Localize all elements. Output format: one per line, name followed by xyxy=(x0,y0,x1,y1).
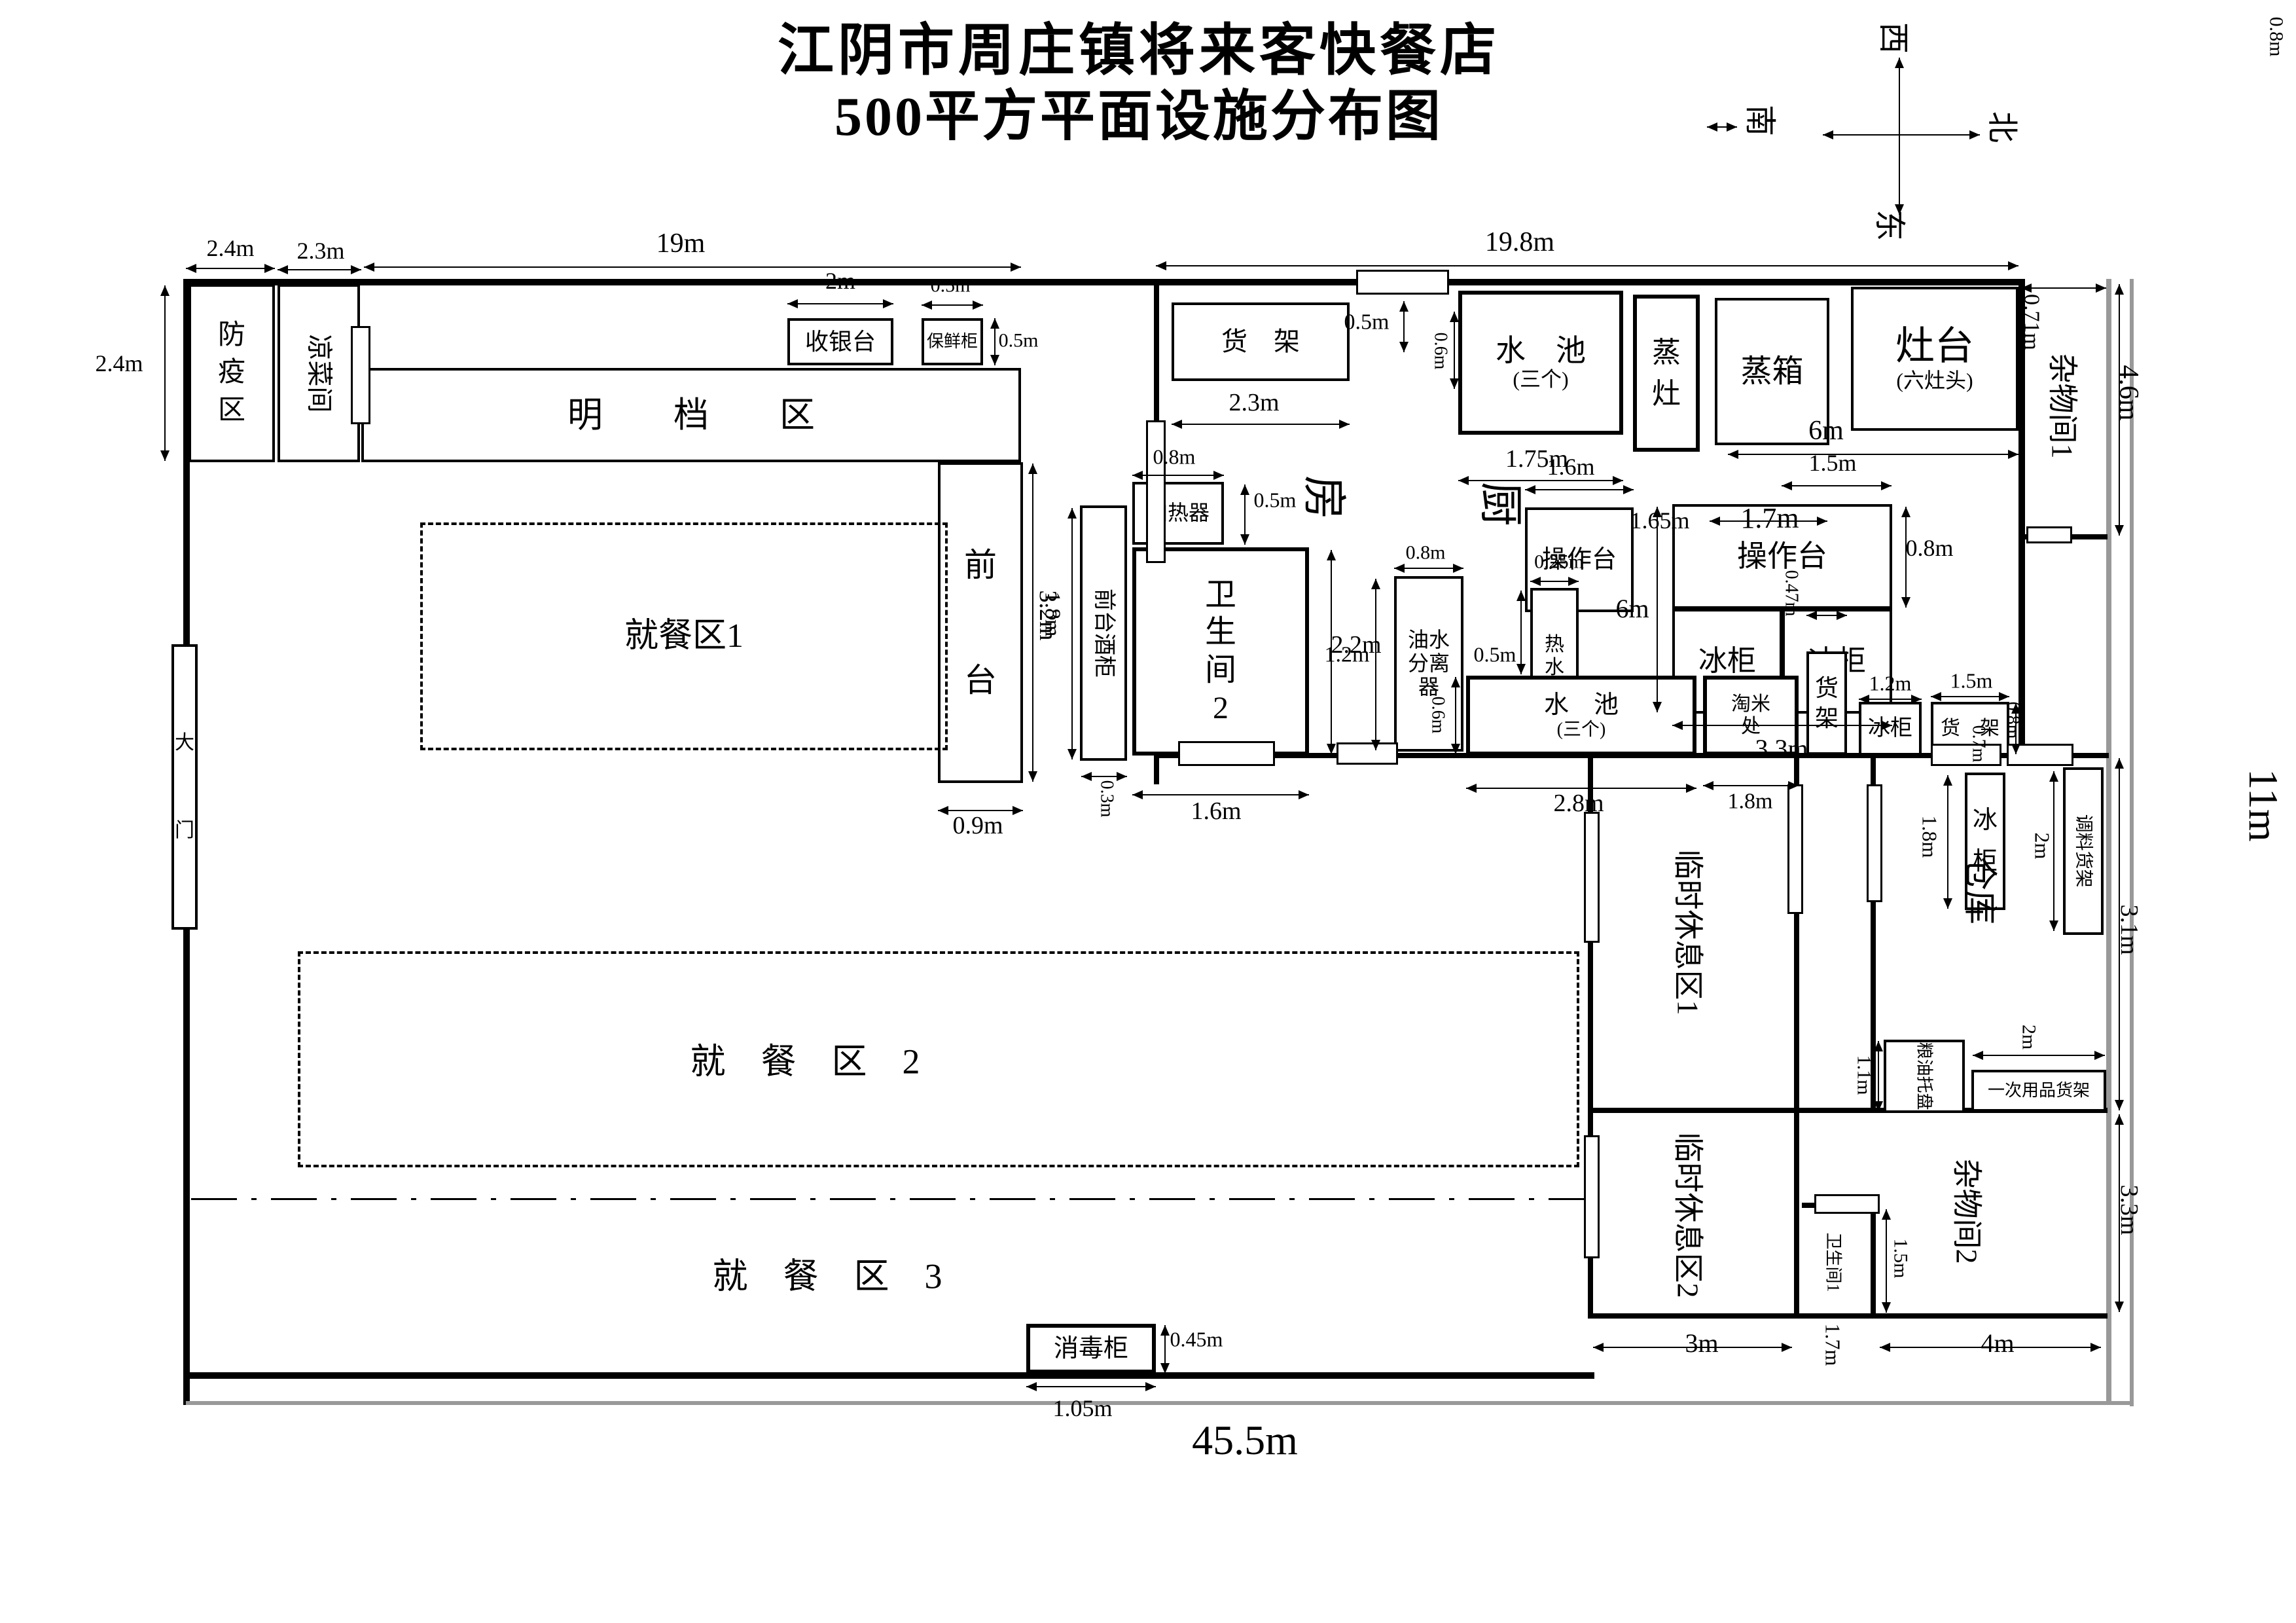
dim-arrow-line xyxy=(1458,480,1623,481)
floor-plan-canvas: 江阴市周庄镇将来客快餐店 500平方平面设施分布图 西 北 东 南 防疫区凉菜间… xyxy=(0,0,2296,1623)
dim-arrow-line xyxy=(1071,508,1073,759)
arrowhead-up xyxy=(2011,703,2020,714)
arrowhead-left xyxy=(1710,517,1720,526)
dim-label: 1.8m xyxy=(1918,816,1941,858)
dim-label: 1.7m xyxy=(1740,503,1799,534)
dim-label: 0.9m xyxy=(952,812,1003,840)
door-opening xyxy=(1867,784,1882,902)
arrowhead-down xyxy=(1028,771,1037,782)
arrowhead-right xyxy=(351,265,361,274)
dim-arrow-line xyxy=(1823,134,1980,136)
room-epidemic-prevention: 防疫区 xyxy=(188,284,275,462)
arrowhead-right xyxy=(1788,781,1799,790)
arrowhead-up xyxy=(1028,464,1037,474)
dim-arrow-line xyxy=(1905,507,1907,608)
dim-arrow-line xyxy=(1973,1055,2105,1056)
dim-arrow-line xyxy=(1156,265,2018,266)
arrowhead-left xyxy=(1823,130,1833,139)
arrowhead-left xyxy=(278,265,288,274)
arrowhead-down xyxy=(2115,1302,2124,1312)
dim-arrow-line xyxy=(1172,424,1350,425)
arrowhead-left xyxy=(1081,772,1092,781)
arrowhead-right xyxy=(1817,517,1827,526)
arrowhead-down xyxy=(2049,921,2058,931)
door-opening xyxy=(1146,420,1166,563)
dim-arrow-line xyxy=(1525,489,1634,490)
dim-label: 19m xyxy=(656,228,706,259)
arrowhead-down xyxy=(2115,525,2124,536)
arrowhead-left xyxy=(1672,721,1683,730)
dim-label: 6m xyxy=(1808,416,1844,446)
arrowhead-up xyxy=(1067,508,1077,519)
arrowhead-right xyxy=(1213,471,1224,480)
arrowhead-up xyxy=(1874,1041,1883,1051)
arrowhead-left xyxy=(1172,420,1182,429)
dim-arrow-line xyxy=(1931,696,2009,697)
arrowhead-right xyxy=(1686,784,1696,793)
dim-arrow-line xyxy=(1520,591,1522,674)
arrowhead-right xyxy=(1339,420,1350,429)
door-opening xyxy=(1814,1194,1880,1214)
arrowhead-right xyxy=(1969,130,1980,139)
front-desk: 前台 xyxy=(938,462,1023,783)
door-opening xyxy=(2026,526,2072,543)
dim-label: 1.5m xyxy=(1890,1239,1912,1279)
dim-label: 11m xyxy=(2240,769,2286,841)
dim-label: 0.45m xyxy=(1170,1328,1223,1351)
dim-label: 4.6m xyxy=(2113,365,2144,420)
dim-label: 0.25m xyxy=(1534,551,1584,573)
disinfection-cabinet: 消毒柜 xyxy=(1026,1324,1156,1374)
arrowhead-left xyxy=(787,299,798,308)
arrowhead-up xyxy=(1901,507,1910,517)
dim-label: 0.5m xyxy=(1254,488,1297,511)
door-opening xyxy=(1584,1135,1600,1258)
dim-label: 0.5m xyxy=(999,330,1039,352)
arrowhead-down xyxy=(1450,378,1459,389)
arrowhead-left xyxy=(1931,692,1941,701)
arrowhead-left xyxy=(186,264,196,273)
arrowhead-right xyxy=(1011,263,1021,272)
arrowhead-right xyxy=(1999,692,2009,701)
arrowhead-right xyxy=(264,264,275,273)
restroom-1-label: 卫生间1 xyxy=(1823,1232,1842,1292)
dim-arrow-line xyxy=(164,285,166,461)
dim-arrow-line xyxy=(2021,287,2106,289)
compass-east-label: 东 xyxy=(1870,210,1916,241)
arrowhead-up xyxy=(990,318,999,329)
arrowhead-down xyxy=(1160,1363,1170,1374)
dim-label: 0.8m xyxy=(2266,17,2287,57)
door-opening xyxy=(1787,784,1803,914)
dim-arrow-line xyxy=(1455,677,1456,754)
dim-label: 45.5m xyxy=(1192,1417,1298,1463)
wall xyxy=(1871,1203,1876,1319)
arrowhead-up xyxy=(1943,775,1952,786)
arrowhead-up xyxy=(2049,771,2058,782)
arrowhead-right xyxy=(973,301,983,310)
shelf-top: 货 架 xyxy=(1172,302,1350,381)
arrowhead-left xyxy=(1782,481,1792,490)
cooking-range: 灶台(六灶头) xyxy=(1851,287,2018,431)
dim-label: 3.3m xyxy=(1755,735,1808,763)
arrowhead-right xyxy=(1299,790,1309,799)
drawing-title: 江阴市周庄镇将来客快餐店 500平方平面设施分布图 xyxy=(484,17,1793,151)
dim-arrow-line xyxy=(1710,520,1827,522)
arrowhead-down xyxy=(2115,1100,2124,1110)
dim-arrow-line xyxy=(1331,550,1332,754)
dim-label: 0.6m xyxy=(1430,333,1450,370)
arrowhead-down xyxy=(1943,898,1952,909)
wall xyxy=(186,1401,2134,1405)
dim-arrow-line xyxy=(1703,785,1799,786)
arrowhead-left xyxy=(1530,577,1541,586)
dim-label: 1.6m xyxy=(1191,798,1241,826)
dim-label: 3m xyxy=(1685,1329,1718,1358)
arrowhead-down xyxy=(160,450,170,461)
door-opening xyxy=(1931,744,2001,766)
arrowhead-up xyxy=(1895,58,1904,68)
dim-label: 1.8m xyxy=(1728,789,1773,813)
arrowhead-down xyxy=(1874,1101,1883,1112)
dim-arrow-line xyxy=(1132,475,1224,476)
arrowhead-right xyxy=(1117,772,1127,781)
dim-arrow-line xyxy=(364,266,1021,268)
arrowhead-right xyxy=(1568,577,1579,586)
arrowhead-right xyxy=(1881,481,1892,490)
dim-arrow-line xyxy=(1899,58,1900,215)
room-open-counter: 明 档 区 xyxy=(361,368,1021,462)
dim-arrow-line xyxy=(1375,579,1376,750)
dim-label: 1.2m xyxy=(1869,672,1912,695)
wall xyxy=(2130,279,2134,1406)
arrowhead-up xyxy=(1399,301,1408,312)
dim-arrow-line xyxy=(1672,725,1892,726)
arrowhead-down xyxy=(1653,702,1662,712)
arrowhead-down xyxy=(1327,744,1336,754)
dim-arrow-line xyxy=(1593,1347,1792,1348)
arrowhead-left xyxy=(922,301,932,310)
sink-three-top: 水 池(三个) xyxy=(1458,291,1623,435)
arrowhead-left xyxy=(1132,790,1143,799)
arrowhead-up xyxy=(1160,1325,1170,1336)
dim-label: 0.5m xyxy=(1474,643,1516,666)
dim-label: 0.6m xyxy=(1427,697,1448,734)
dim-label: 1.05m xyxy=(1052,1396,1112,1422)
dim-label: 2m xyxy=(2030,833,2053,860)
storage-room-2-label: 杂物间2 xyxy=(1950,1159,1983,1264)
dim-arrow-line xyxy=(938,810,1023,811)
door-opening xyxy=(351,326,370,424)
dim-label: 2m xyxy=(2018,1025,2040,1049)
dim-arrow-line xyxy=(1132,794,1309,795)
arrowhead-right xyxy=(2008,261,2018,270)
dim-arrow-line xyxy=(1032,464,1033,782)
dim-arrow-line xyxy=(787,303,893,304)
door-opening xyxy=(1584,812,1600,943)
dim-label: 3.2m xyxy=(1033,590,1061,640)
arrowhead-up xyxy=(1516,591,1526,601)
arrowhead-right xyxy=(1837,611,1847,620)
dim-label: 0.8m xyxy=(1905,536,1953,562)
dim-arrow-line xyxy=(1947,775,1948,909)
dim-label: 4m xyxy=(1981,1329,2014,1358)
arrowhead-left xyxy=(364,263,374,272)
arrowhead-left xyxy=(1593,1343,1604,1352)
arrowhead-left xyxy=(1728,450,1738,459)
arrowhead-down xyxy=(1882,1302,1891,1313)
arrowhead-up xyxy=(2115,284,2124,295)
arrowhead-left xyxy=(1132,471,1143,480)
arrowhead-left xyxy=(1156,261,1166,270)
arrowhead-left xyxy=(1973,1051,1983,1060)
arrowhead-down xyxy=(1067,749,1077,759)
dim-arrow-line xyxy=(1782,485,1892,486)
arrowhead-left xyxy=(938,806,948,815)
arrowhead-up xyxy=(2115,1114,2124,1125)
dim-label: 2.3m xyxy=(1229,390,1279,417)
arrowhead-right xyxy=(1613,476,1623,485)
dim-label: 2.4m xyxy=(95,351,143,377)
arrowhead-right xyxy=(1882,721,1892,730)
zone-divider-line xyxy=(191,1198,1588,1200)
dim-label: 0.71m xyxy=(2019,294,2043,350)
shelf-vertical: 货架 xyxy=(1806,651,1847,755)
dim-arrow-line xyxy=(2119,284,2120,536)
door-opening xyxy=(1178,741,1275,766)
arrowhead-up xyxy=(1371,579,1380,589)
dim-label: 0.8m xyxy=(1406,542,1446,564)
dim-arrow-line xyxy=(278,269,361,270)
arrowhead-up xyxy=(1451,677,1460,687)
dim-label: 1.1m xyxy=(1854,1055,1875,1095)
dim-label: 0.7m xyxy=(1968,725,1988,763)
wall xyxy=(2018,279,2025,758)
dim-label: 2.4m xyxy=(206,236,254,262)
dim-arrow-line xyxy=(186,268,275,269)
dim-label: 1.5m xyxy=(1950,669,1993,692)
arrowhead-up xyxy=(1240,484,1249,495)
steam-stove: 蒸灶 xyxy=(1633,295,1700,452)
warehouse-label: 仓库 xyxy=(1960,856,1998,924)
arrowhead-right xyxy=(2096,283,2106,293)
arrowhead-up xyxy=(1450,312,1459,322)
dining-area-2-label: 就 餐 区 2 xyxy=(691,1042,920,1081)
disposable-goods-shelf: 一次用品货架 xyxy=(1971,1070,2106,1112)
dim-label: 1.6m xyxy=(1547,454,1594,481)
storage-room-1-label: 杂物间1 xyxy=(2045,354,2079,459)
dining-area-1: 就餐区1 xyxy=(420,522,948,750)
title-line-2: 500平方平面设施分布图 xyxy=(484,84,1793,151)
dim-arrow-line xyxy=(2119,758,2120,1110)
dim-arrow-line xyxy=(1880,1347,2101,1348)
restroom-2: 卫生间2 xyxy=(1132,547,1309,756)
arrowhead-up xyxy=(160,285,170,296)
rest-area-1-label: 临时休息区1 xyxy=(1671,850,1704,1015)
arrowhead-left xyxy=(1394,564,1405,573)
dim-arrow-line xyxy=(1026,1386,1156,1387)
arrowhead-right xyxy=(1145,1382,1156,1391)
wall xyxy=(186,279,2025,285)
arrowhead-right xyxy=(1013,806,1023,815)
arrowhead-right xyxy=(1782,1343,1792,1352)
dim-arrow-line xyxy=(1454,312,1455,389)
dim-label: 2m xyxy=(825,268,855,295)
sink-three-lower: 水 池(三个) xyxy=(1466,676,1696,756)
dim-label: 2.3m xyxy=(296,238,344,264)
dim-arrow-line xyxy=(2053,771,2054,931)
dim-label: 0.47m xyxy=(1781,570,1801,617)
arrowhead-up xyxy=(1882,1209,1891,1220)
seasoning-shelf: 调料货架 xyxy=(2063,767,2104,935)
arrowhead-down xyxy=(1901,597,1910,608)
arrowhead-left xyxy=(1703,781,1713,790)
arrowhead-down xyxy=(1516,664,1526,674)
dim-label: 0.5m xyxy=(1344,310,1390,334)
dim-arrow-line xyxy=(1466,788,1696,789)
arrowhead-up xyxy=(1327,550,1336,560)
arrowhead-up xyxy=(1653,507,1662,517)
arrowhead-left xyxy=(1859,695,1869,704)
cashier-counter: 收银台 xyxy=(787,318,893,365)
dim-arrow-line xyxy=(1886,1209,1887,1313)
arrowhead-down xyxy=(1371,740,1380,750)
compass-north-label: 北 xyxy=(1982,111,2028,143)
arrowhead-left xyxy=(1026,1382,1037,1391)
door-opening xyxy=(1336,742,1398,765)
dim-label: 2.8m xyxy=(1553,790,1604,818)
title-line-1: 江阴市周庄镇将来客快餐店 xyxy=(484,17,1793,84)
arrowhead-right xyxy=(1911,695,1922,704)
dim-arrow-line xyxy=(1728,454,2018,455)
arrowhead-down xyxy=(990,355,999,365)
dim-label: 19.8m xyxy=(1485,227,1554,257)
arrowhead-left xyxy=(2021,283,2032,293)
arrowhead-left xyxy=(1458,476,1469,485)
dim-label: 0.8m xyxy=(1153,445,1196,468)
arrowhead-left xyxy=(1806,611,1817,620)
door-opening xyxy=(1356,270,1449,295)
kitchen-label-char-chu: 厨 xyxy=(1476,482,1525,526)
arrowhead-down xyxy=(1399,342,1408,352)
rest-area-2-label: 临时休息区2 xyxy=(1671,1133,1704,1298)
arrowhead-right xyxy=(1453,564,1463,573)
arrowhead-right xyxy=(2094,1051,2105,1060)
dining-area-2-zone xyxy=(298,951,1579,1167)
main-gate: 大门 xyxy=(171,644,198,930)
arrowhead-left xyxy=(1466,784,1477,793)
arrowhead-right xyxy=(2090,1343,2101,1352)
arrowhead-down xyxy=(1451,744,1460,754)
dim-label: 0.3m xyxy=(1096,780,1117,818)
room-cold-dish: 凉菜间 xyxy=(278,284,360,462)
arrowhead-right xyxy=(2008,450,2018,459)
arrowhead-up xyxy=(2115,758,2124,769)
dim-label: 6m xyxy=(1615,594,1649,623)
dim-label: 1.7m xyxy=(1821,1324,1844,1366)
front-wine-cabinet: 前台酒柜 xyxy=(1080,505,1127,761)
dim-arrow-line xyxy=(1657,507,1658,712)
arrowhead-right xyxy=(883,299,893,308)
fresh-keeping-cabinet: 保鲜柜 xyxy=(922,318,983,365)
dining-area-3-label: 就 餐 区 3 xyxy=(713,1257,942,1296)
arrowhead-down xyxy=(1240,534,1249,545)
wall xyxy=(186,1372,1594,1379)
compass-south-label: 南 xyxy=(1740,105,1786,136)
kitchen-label-char-fang: 房 xyxy=(1299,475,1348,520)
arrowhead-down xyxy=(2011,744,2020,754)
wall xyxy=(2106,279,2111,1405)
dim-label: 0.5m xyxy=(931,275,971,297)
grain-oil-pallet: 粮油托盘 xyxy=(1884,1040,1965,1113)
arrowhead-right xyxy=(1623,485,1634,494)
compass-west-label: 西 xyxy=(1874,22,1920,54)
arrowhead-left xyxy=(1880,1343,1890,1352)
arrowhead-left xyxy=(1525,485,1535,494)
wall xyxy=(1588,1313,2108,1319)
dim-arrow-line xyxy=(2119,1114,2120,1312)
